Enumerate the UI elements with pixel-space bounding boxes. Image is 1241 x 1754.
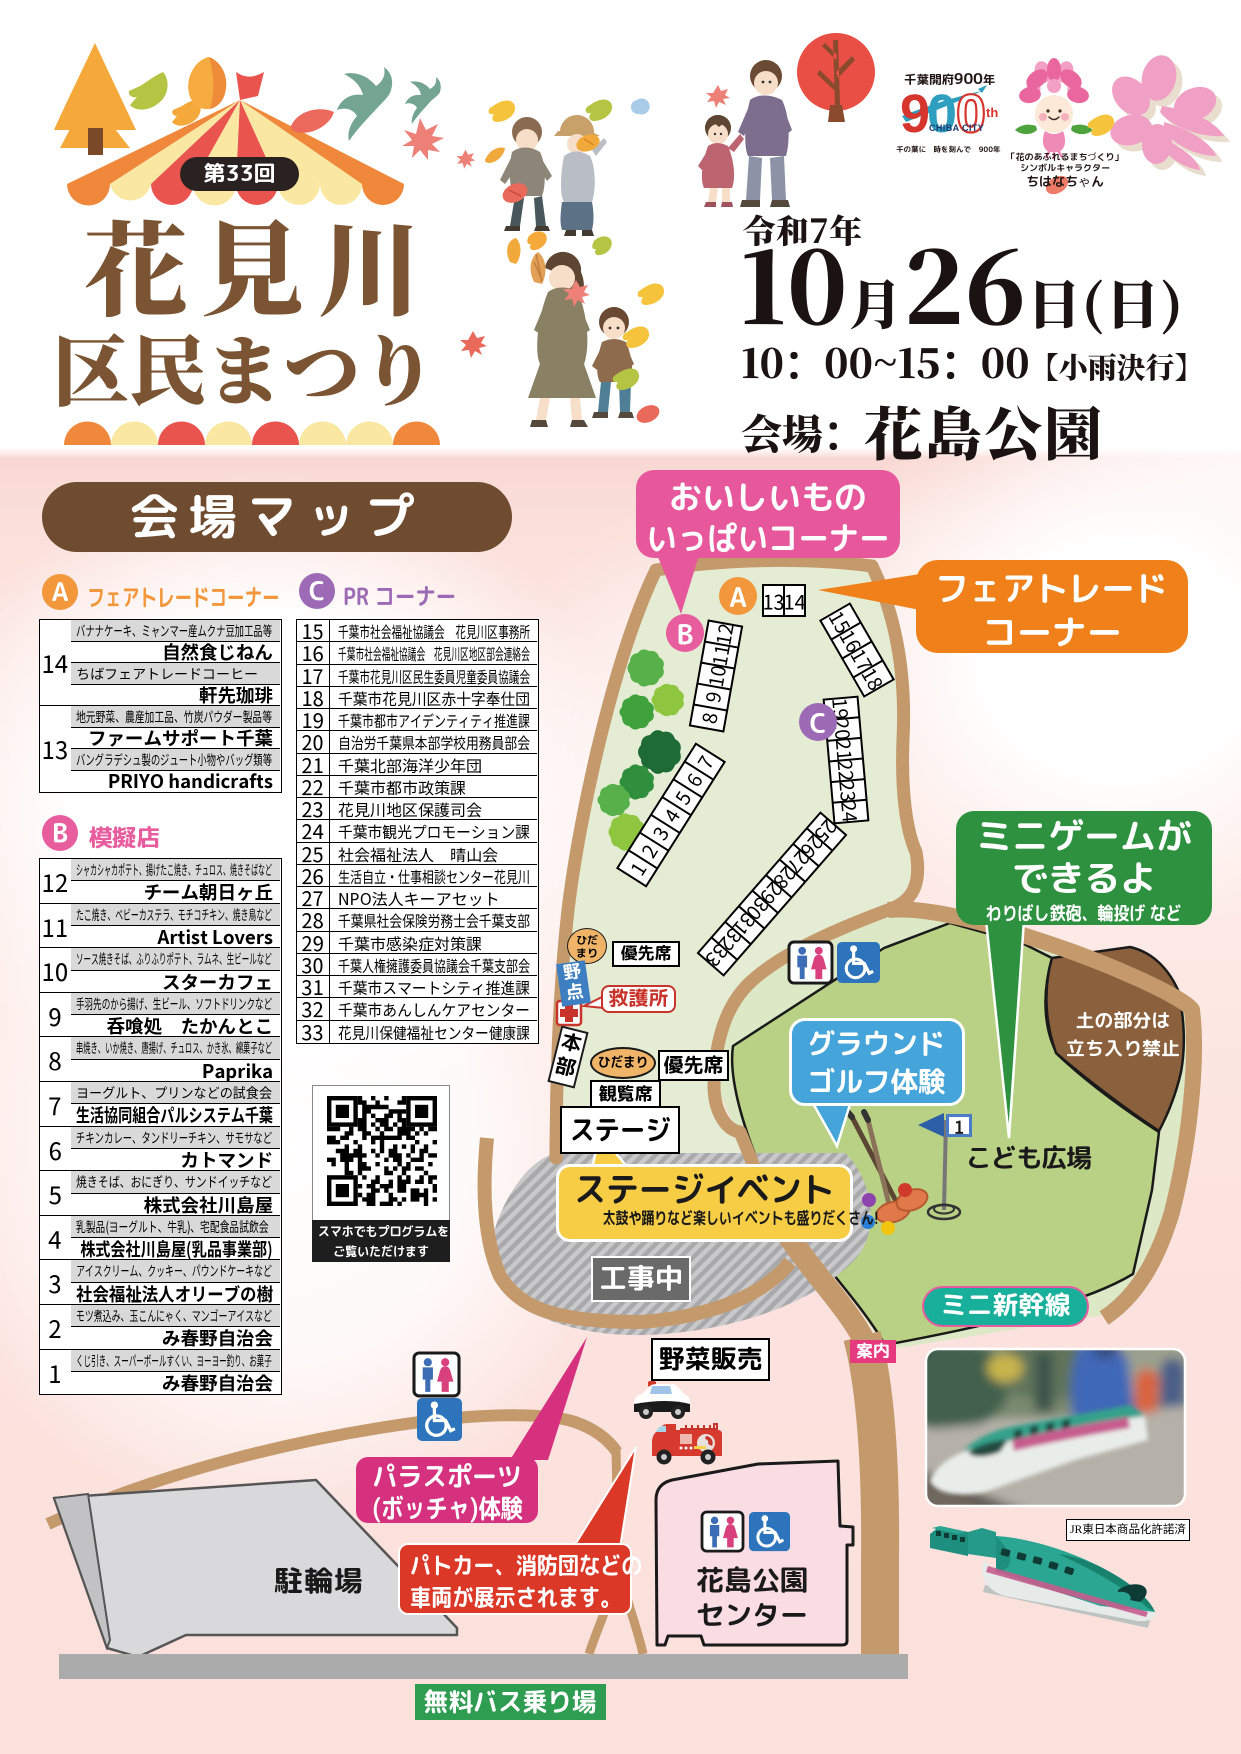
svg-text:0: 0	[927, 84, 957, 144]
svg-text:th: th	[986, 105, 998, 120]
svg-text:9: 9	[900, 84, 930, 144]
svg-text:CHIBA CITY: CHIBA CITY	[929, 123, 984, 133]
svg-text:0: 0	[956, 84, 986, 144]
svg-text:1: 1	[954, 1114, 963, 1139]
svg-text:千の葉に 時を刻んで 900年: 千の葉に 時を刻んで 900年	[896, 145, 1000, 155]
